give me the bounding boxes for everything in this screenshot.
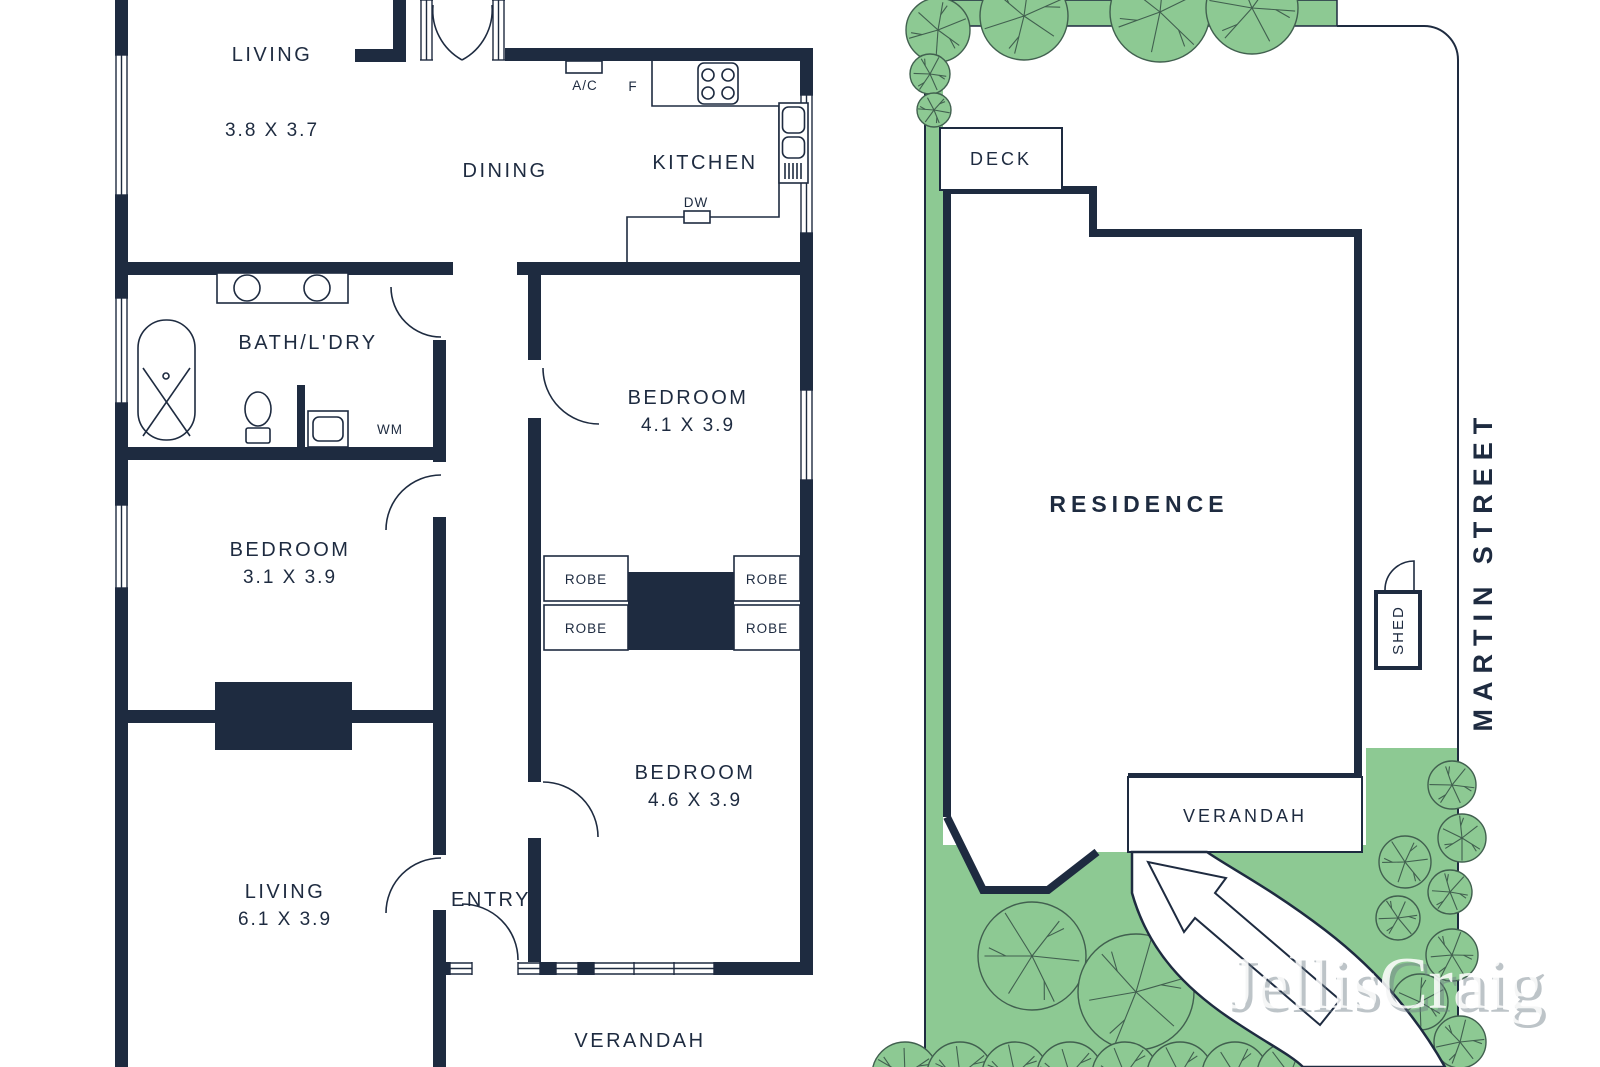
room-label-entry: ENTRY xyxy=(451,889,531,911)
dishwasher-label: DW xyxy=(684,195,709,210)
tree-icon xyxy=(1428,761,1476,809)
room-label-bath: BATH/L'DRY xyxy=(238,332,377,354)
ac-label: A/C xyxy=(572,78,598,93)
room-dims-bedroom3: 4.6 X 3.9 xyxy=(648,790,742,811)
window xyxy=(556,962,578,975)
bath-door xyxy=(391,287,441,337)
bathtub-icon xyxy=(138,320,195,440)
tree-icon xyxy=(1376,896,1420,940)
residence-label: RESIDENCE xyxy=(1049,491,1228,517)
fridge-label: F xyxy=(628,79,637,94)
room-label-bedroom2: BEDROOM xyxy=(230,539,351,561)
tree-icon xyxy=(980,0,1068,60)
tree-icon xyxy=(917,93,951,127)
robe-label: ROBE xyxy=(746,621,788,636)
street-name-street: STREET xyxy=(1468,410,1498,565)
tree-icon xyxy=(1438,814,1486,862)
room-label-kitchen: KITCHEN xyxy=(652,152,757,174)
shed-door xyxy=(1385,561,1414,590)
bedroom1-door xyxy=(543,368,599,424)
window xyxy=(492,0,505,60)
window xyxy=(800,390,813,480)
door-arcs xyxy=(386,5,599,960)
bath-fixtures xyxy=(138,273,348,447)
robe-label: ROBE xyxy=(565,621,607,636)
toilet-icon xyxy=(245,392,271,426)
vanity-icon xyxy=(217,273,348,303)
room-label-living-bottom: LIVING xyxy=(245,881,326,903)
tree-icon xyxy=(978,902,1086,1010)
french-door-right xyxy=(462,5,492,60)
living-door xyxy=(386,858,441,913)
window xyxy=(450,962,472,975)
fireplace xyxy=(215,682,352,750)
robe-label: ROBE xyxy=(746,572,788,587)
room-dims-living-top: 3.8 X 3.7 xyxy=(225,120,319,141)
robe-divider xyxy=(628,572,734,650)
french-door-left xyxy=(433,5,462,60)
window xyxy=(115,298,128,403)
window xyxy=(594,962,714,975)
washing-machine-label: WM xyxy=(377,422,403,437)
street-name-martin: MARTIN xyxy=(1468,579,1498,732)
window xyxy=(420,0,433,60)
front-door xyxy=(462,904,518,960)
room-label-bedroom1: BEDROOM xyxy=(628,387,749,409)
tree-icon xyxy=(1110,0,1210,62)
room-label-dining: DINING xyxy=(463,160,548,182)
tree-icon xyxy=(1428,870,1472,914)
dishwasher-icon xyxy=(684,211,710,223)
robe-label: ROBE xyxy=(565,572,607,587)
window xyxy=(115,55,128,195)
room-dims-bedroom2: 3.1 X 3.9 xyxy=(243,567,337,588)
agency-watermark: JellisCraig JellisCraig xyxy=(1227,943,1548,1029)
site-verandah-label: VERANDAH xyxy=(1183,806,1307,826)
tree-icon xyxy=(1379,836,1431,888)
floor-plan: LIVING 3.8 X 3.7 DINING KITCHEN A/C F DW… xyxy=(115,0,813,1067)
shed-label: SHED xyxy=(1390,605,1407,655)
room-dims-bedroom1: 4.1 X 3.9 xyxy=(641,415,735,436)
room-label-bedroom3: BEDROOM xyxy=(635,762,756,784)
tree-icon xyxy=(1206,0,1298,54)
bedroom2-door xyxy=(386,475,441,530)
tree-icon xyxy=(906,0,970,62)
ac-unit-icon xyxy=(566,61,602,73)
room-label-verandah: VERANDAH xyxy=(574,1030,705,1052)
floorplan-page: LIVING 3.8 X 3.7 DINING KITCHEN A/C F DW… xyxy=(0,0,1600,1067)
svg-text:JellisCraig: JellisCraig xyxy=(1227,943,1544,1025)
bedroom3-door xyxy=(543,782,598,837)
room-dims-living-bottom: 6.1 X 3.9 xyxy=(238,909,332,930)
window xyxy=(115,505,128,588)
windows xyxy=(115,0,813,975)
deck-label: DECK xyxy=(970,149,1032,169)
room-label-living-top: LIVING xyxy=(232,44,313,66)
window xyxy=(518,962,540,975)
site-plan: DECK RESIDENCE VERANDAH SHED MARTIN STRE… xyxy=(872,0,1498,1067)
tree-icon xyxy=(910,54,950,94)
